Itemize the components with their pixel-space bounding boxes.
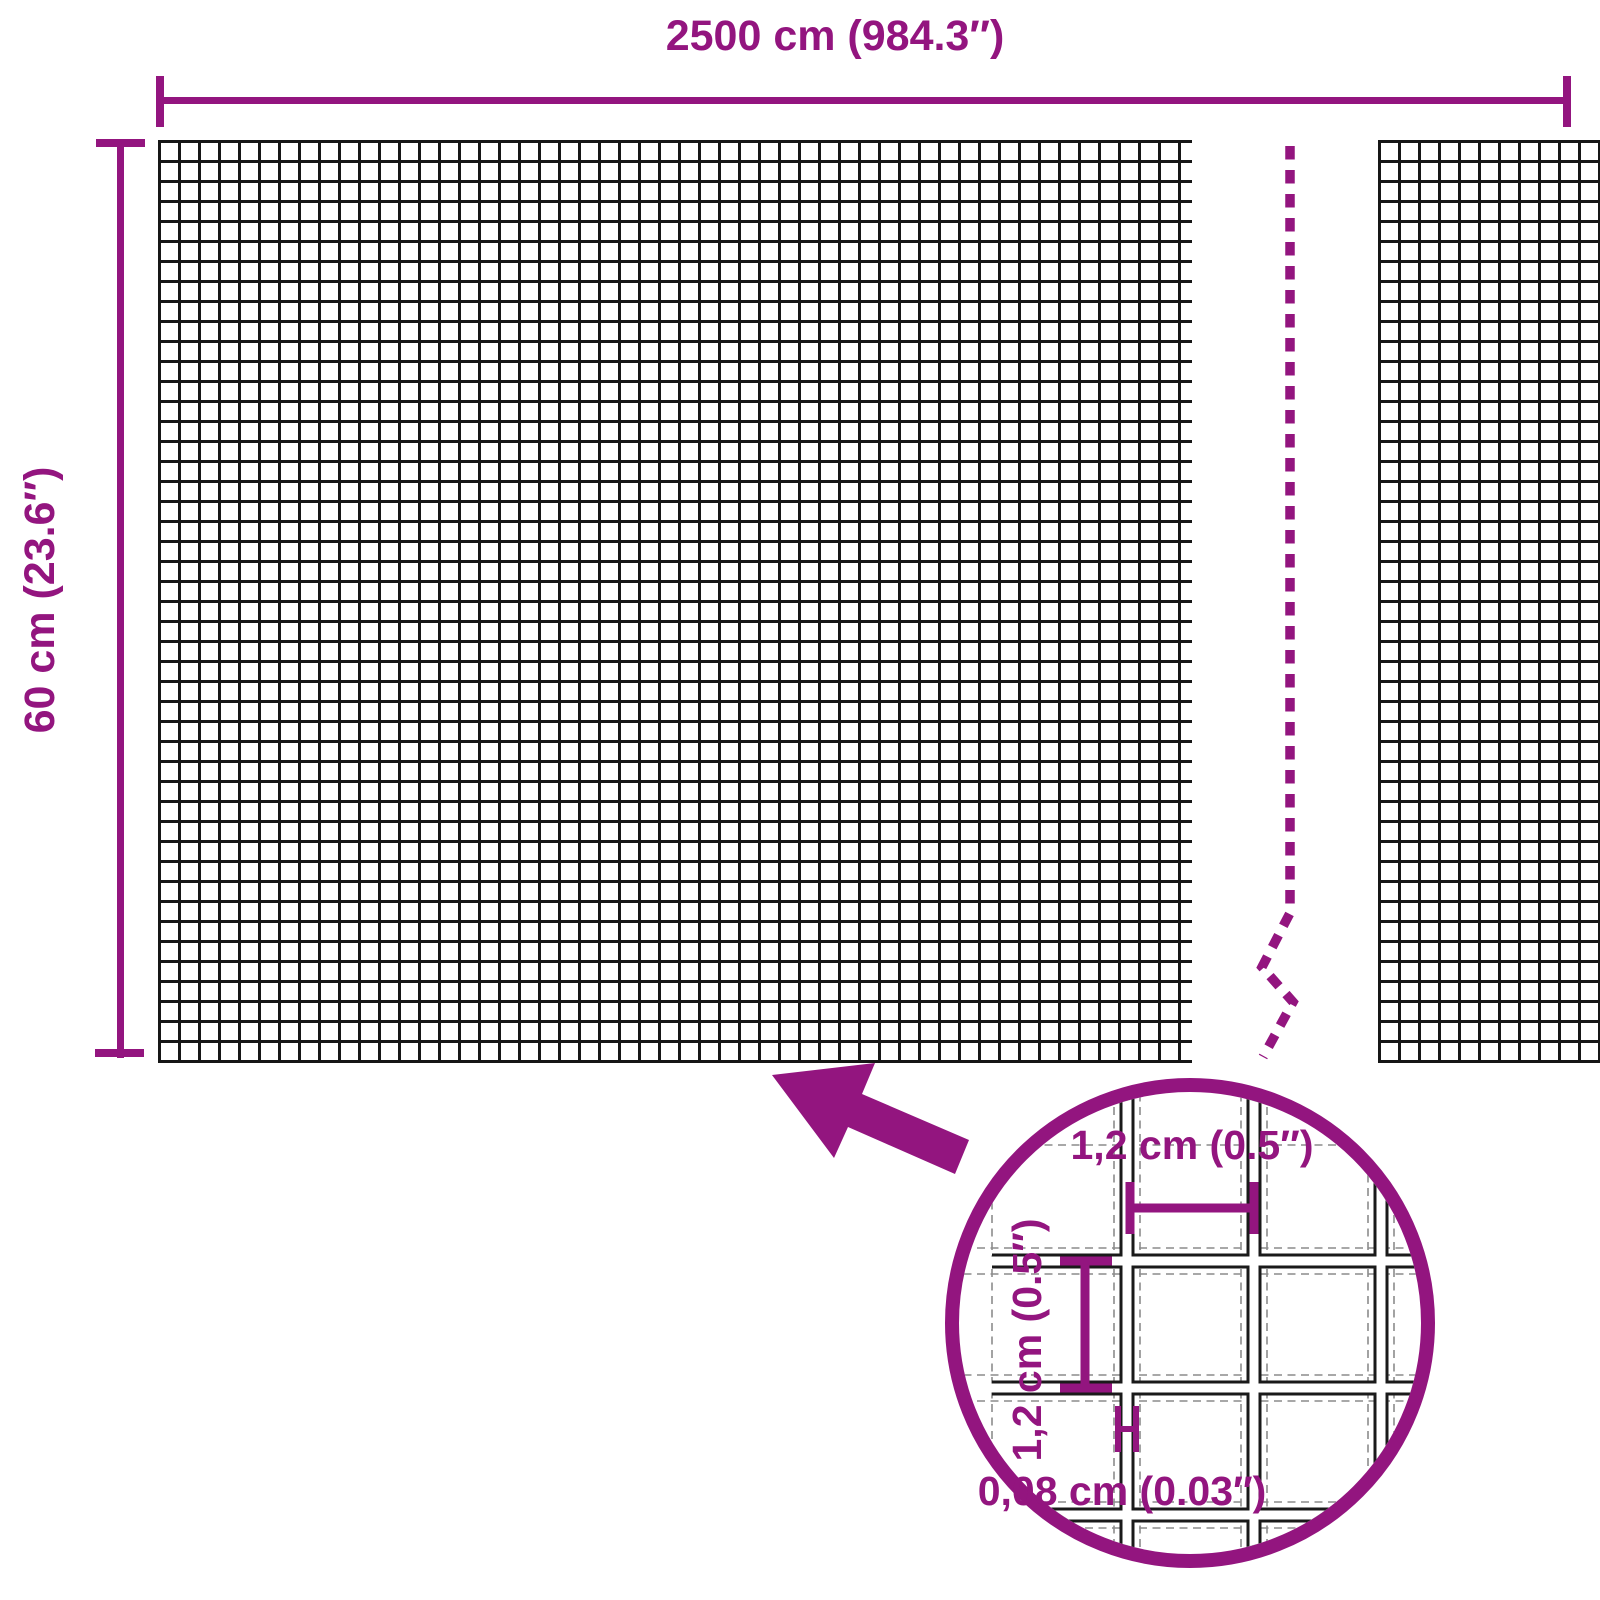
product-dimension-diagram: 2500 cm (984.3″) 60 cm (23.6″) 1,2 cm (0… — [0, 0, 1600, 1600]
break-line — [1262, 146, 1293, 1057]
wire-thickness-label: 0,08 cm (0.03″) — [892, 1463, 1352, 1519]
height-dimension-label: 60 cm (23.6″) — [10, 350, 70, 850]
diagram-overlay — [0, 0, 1600, 1600]
width-dimension-label: 2500 cm (984.3″) — [560, 10, 1110, 62]
zoom-arrow-icon — [772, 1063, 969, 1174]
